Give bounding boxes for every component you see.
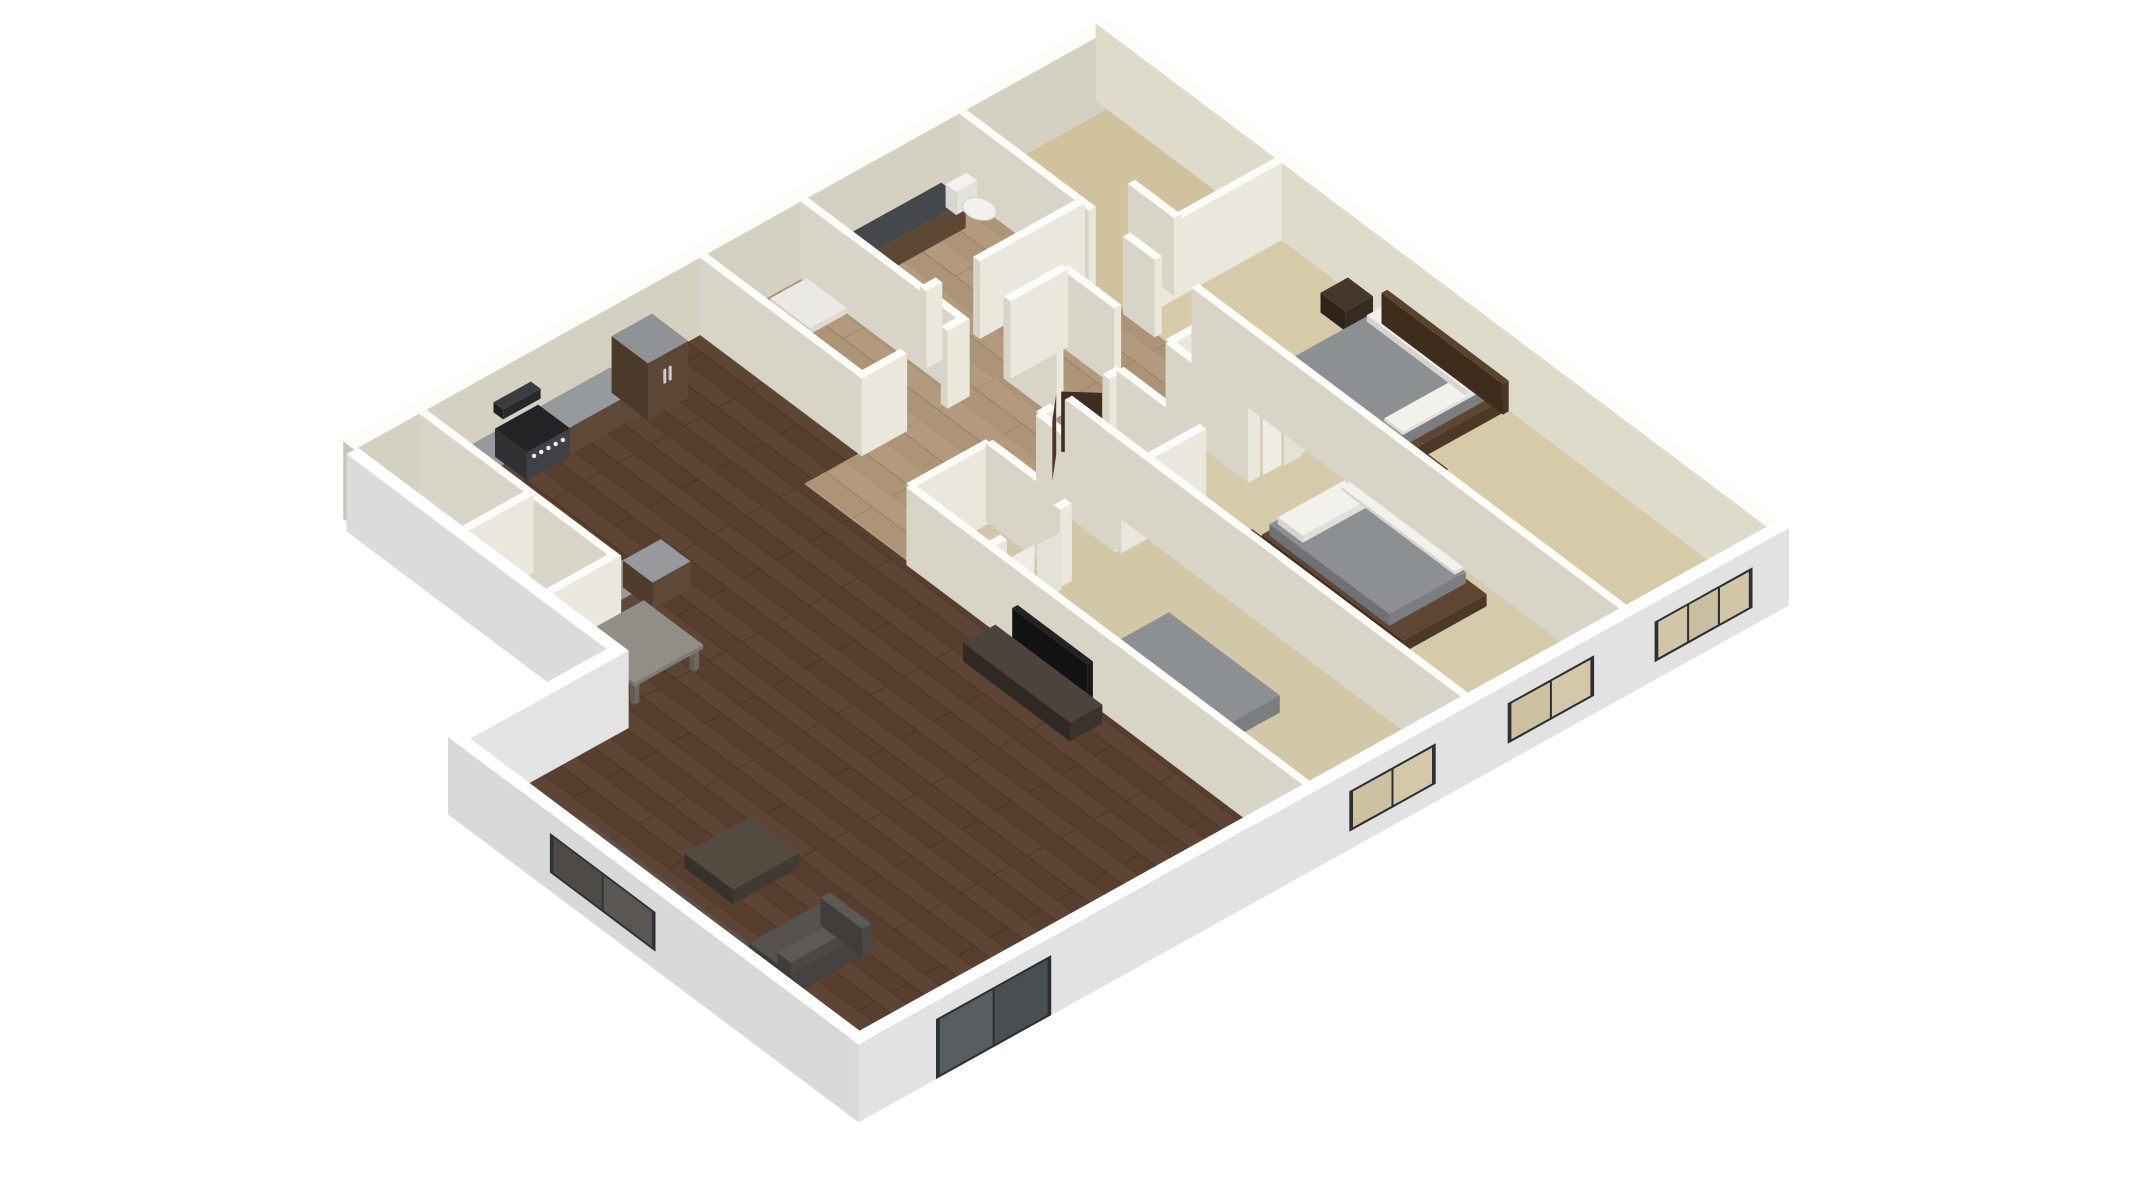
- wall-bath2-south-a: [920, 277, 942, 368]
- fridge-handle-left: [663, 368, 666, 383]
- wall-bath1-south-b: [941, 316, 966, 409]
- floorplan-3d-render: [0, 0, 2133, 1200]
- floorplan-viewport: [0, 0, 2133, 1200]
- fridge-handle-right: [669, 366, 672, 381]
